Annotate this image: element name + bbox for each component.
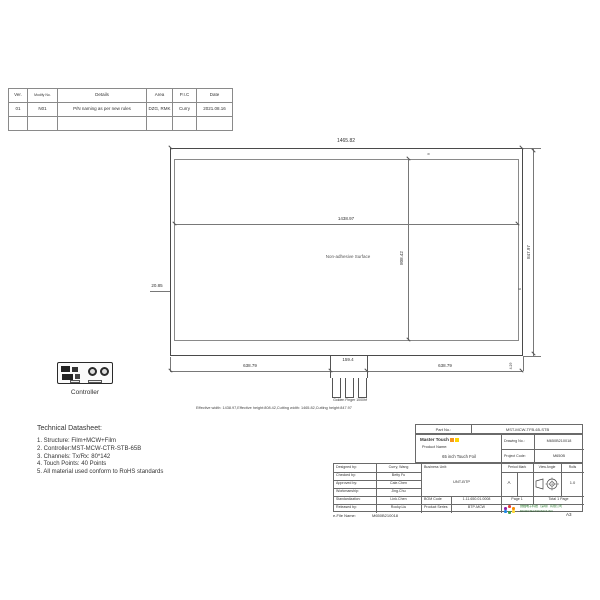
connector-tab [70,380,80,383]
page-value: Page 1 [501,498,533,502]
dim-effective-width: 1438.97 [306,217,386,222]
golden-finger [345,378,354,398]
brand-text: Master Touch [420,437,449,442]
controller-label: Controller [57,389,113,396]
brand-icon [455,438,459,442]
product-name-label: Product Name: [422,446,447,450]
signature-label: Workmanship: [336,490,359,494]
product-series-value: BTP-MCW [452,506,501,510]
signature-label: Standardization: [336,498,361,501]
dim-tick [531,351,535,355]
period-mark-label: Period Mark [501,466,533,469]
rev-ver: 01 [9,103,28,117]
revision-data-row: 01 N01 P/N naming as per new rules DZG, … [9,103,233,117]
col-details: Details [58,89,147,103]
dim-right-margin: 6 [519,284,525,294]
col-ver: Ver. [9,89,28,103]
title-upper-block: Master Touch Product Name: 65 inch Touch… [415,434,583,463]
datasheet-title: Technical Datasheet: [37,425,267,432]
revision-header-row: Ver. Modify No. Details Area P.I.C Date [9,89,233,103]
dim-tick [531,148,535,152]
height-dim-line [408,159,409,341]
controller-board [57,362,113,384]
revision-table: Ver. Modify No. Details Area P.I.C Date … [8,88,233,131]
part-no-row: Part No.: MST-MCW-TFB-65-STB [415,424,583,434]
chip [61,366,70,372]
third-angle-projection-icon [535,477,560,491]
company-name-cn: 微触电子科技（深圳）有限公司 [520,505,562,508]
signature-value: Cale.Chen [377,482,420,486]
dim-left-margin: 20.85 [145,284,169,289]
rev-area: DZG, RMK [147,103,173,117]
technical-datasheet: Technical Datasheet: 1. Structure: Film+… [37,425,267,477]
connector-tab [88,380,102,383]
signature-value: Link.Chen [377,498,420,502]
project-code-label: Project Code: [504,455,526,459]
view-angle-icon [535,477,560,492]
signature-label: Designed by: [336,466,357,470]
product-series-label: Product Series [424,506,448,510]
signature-value: Rocky.Liu [377,506,420,510]
part-no-value: MST-MCW-TFB-65-STB [472,428,583,432]
brand-icon [450,438,454,442]
rolls-label: Rolls [561,466,584,469]
dim-cutting-width: 1465.82 [306,139,386,144]
dimension-note: Effective width: 1438.97,Effective heigh… [196,407,416,411]
efile-label: e-File Name: [333,514,356,518]
bottom-ext-line [523,356,541,357]
period-mark-value: A [501,481,517,486]
col-modify-no: Modify No. [28,89,58,103]
bom-code-label: BOM Code [424,498,442,502]
dim-top-margin: 9 [428,149,434,159]
revision-empty-row [9,117,233,131]
flex-tail [330,356,368,378]
brand-logo: Master Touch [420,438,459,443]
col-date: Date [197,89,233,103]
datasheet-item: 5. All material used conform to RoHS sta… [37,469,267,477]
dim-corner: 4.29 [510,359,516,373]
chip [72,367,78,372]
connector-port-icon [100,367,109,376]
golden-finger-label: Golden Finger 1000hf [322,399,378,403]
view-angle-label: View Angle [533,466,561,469]
connector-port-icon [88,367,97,376]
dim-bottom-right: 638.79 [410,364,480,369]
dim-bottom-left: 638.79 [215,364,285,369]
business-unit-label: Business Unit: [424,466,447,470]
golden-finger [332,378,341,398]
page-total-value: Total 1 Page [533,498,584,502]
golden-finger [358,378,367,398]
datasheet-item: 1. Structure: Film+MCW+Film [37,438,267,446]
drawing-no-value: M650B210018 [535,440,583,444]
width-dim-line [174,224,519,225]
surface-label: Non-adhesive Surface [310,255,386,260]
effective-area-outline [174,159,519,341]
datasheet-item: 2. Controller:MST-MCW-CTR-STB-65B [37,446,267,454]
dim-cutting-height: 847.97 [527,237,535,267]
drawing-sheet: Ver. Modify No. Details Area P.I.C Date … [0,0,600,600]
dim-tick [168,145,172,149]
chip [75,374,80,379]
br-ext [523,357,524,371]
left-margin-leader [150,291,170,292]
col-pic: P.I.C [173,89,197,103]
signature-value: Curry, Wang [377,466,420,470]
title-lower-block: Designed by: Curry, Wang Checked by: Bet… [333,463,583,512]
bom-code-value: 1.11.650.01.0008 [452,498,501,502]
business-unit-value: UNT-BTP [422,480,501,484]
dim-effective-height: 808.42 [400,243,408,273]
signature-label: Checked by: [336,474,356,478]
project-code-value: M650B [535,455,583,459]
signature-label: Approved by: [336,482,357,486]
rev-date: 2021.08.16 [197,103,233,117]
col-area: Area [147,89,173,103]
company-logo-icon [504,505,516,513]
rev-modify-no: N01 [28,103,58,117]
dim-tick [168,368,172,372]
datasheet-item: 4. Touch Points: 40 Points [37,461,267,469]
company-name-en: MICROTECTRONICS INC [520,510,553,513]
sheet-size: A3 [566,513,572,518]
part-no-label: Part No.: [416,428,471,432]
rolls-value: 1.0 [561,481,584,485]
rev-details: P/N naming as per new rules [58,103,147,117]
product-name-value: 65 inch Touch Foil [424,455,494,459]
signature-value: Betty Fu [377,474,420,478]
efile-value: M650B210018 [372,514,398,518]
rev-pic: Curry [173,103,197,117]
datasheet-item: 3. Channels: Tx/Rx: 80*142 [37,454,267,462]
drawing-no-label: Drawing No.: [504,440,525,444]
signature-value: Jing.Chu [377,490,420,494]
signature-label: Released by: [336,506,357,510]
